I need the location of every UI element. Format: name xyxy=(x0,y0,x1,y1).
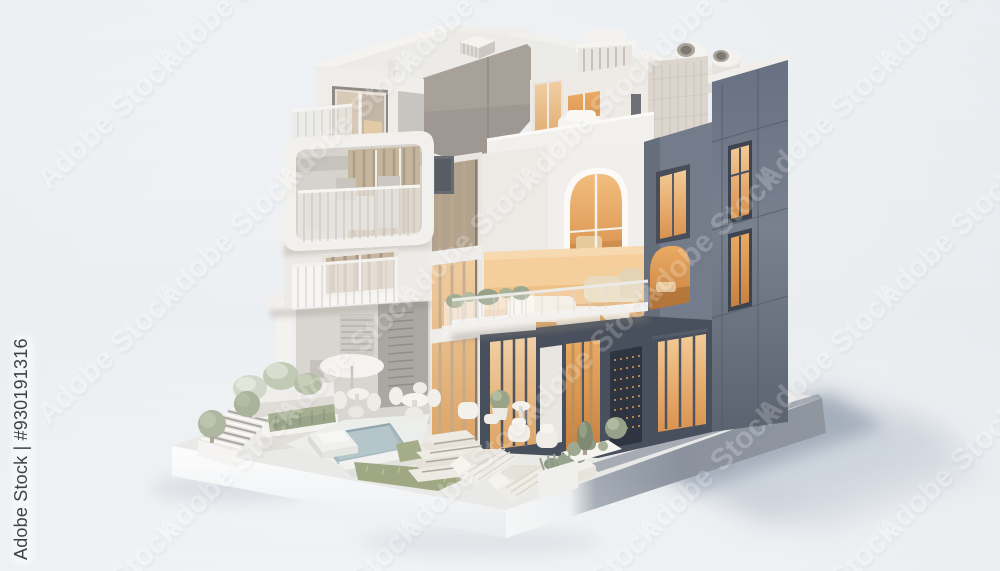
svg-text:Adobe Stock | #930191316: Adobe Stock | #930191316 xyxy=(11,338,31,560)
